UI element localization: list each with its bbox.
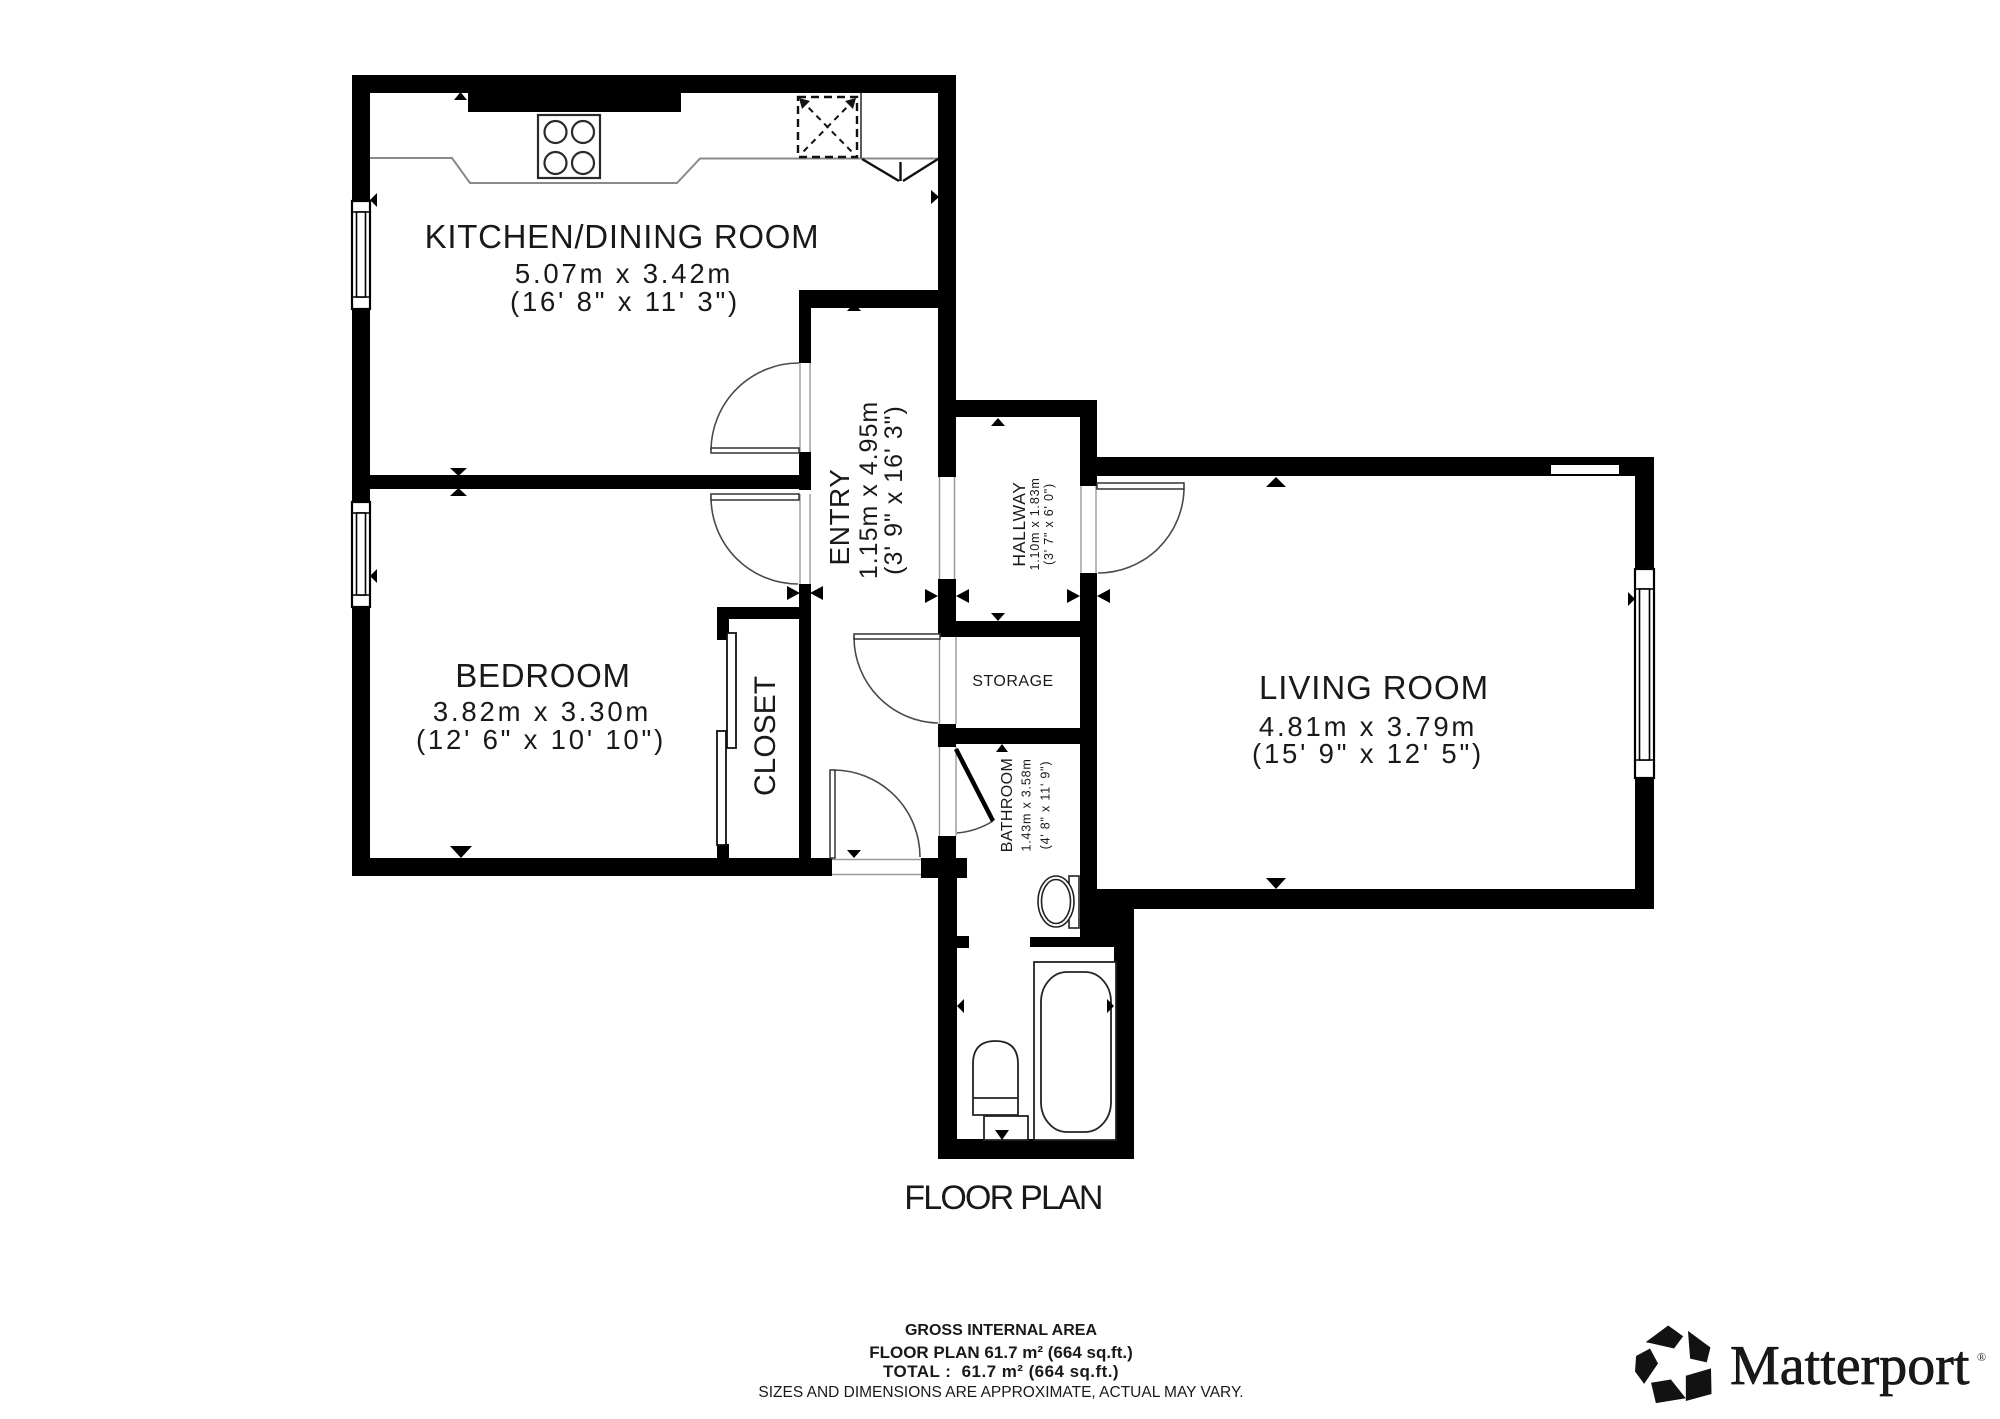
- svg-text:STORAGE: STORAGE: [972, 673, 1053, 690]
- svg-text:5.07m x 3.42m: 5.07m x 3.42m: [515, 258, 733, 289]
- svg-text:(15' 9" x 12' 5"): (15' 9" x 12' 5"): [1252, 738, 1484, 769]
- svg-text:®: ®: [1977, 1350, 1986, 1364]
- svg-text:1.15m x 4.95m: 1.15m x 4.95m: [855, 401, 883, 579]
- svg-text:TOTAL : 61.7 m² (664 sq.ft.): TOTAL : 61.7 m² (664 sq.ft.): [883, 1362, 1119, 1381]
- svg-text:Matterport: Matterport: [1730, 1335, 1970, 1397]
- svg-text:(4' 8" x 11' 9"): (4' 8" x 11' 9"): [1039, 761, 1053, 850]
- svg-text:BATHROOM: BATHROOM: [999, 758, 1016, 852]
- svg-text:(3' 9" x 16' 3"): (3' 9" x 16' 3"): [880, 405, 908, 575]
- svg-text:FLOOR PLAN 61.7 m² (664 sq.ft.: FLOOR PLAN 61.7 m² (664 sq.ft.): [869, 1343, 1133, 1362]
- svg-text:CLOSET: CLOSET: [749, 676, 782, 796]
- svg-text:(16' 8" x 11' 3"): (16' 8" x 11' 3"): [510, 286, 740, 317]
- svg-text:FLOOR PLAN: FLOOR PLAN: [904, 1179, 1101, 1217]
- svg-text:GROSS INTERNAL AREA: GROSS INTERNAL AREA: [905, 1322, 1097, 1339]
- svg-text:(3' 7" x 6' 0"): (3' 7" x 6' 0"): [1042, 483, 1056, 565]
- svg-text:ENTRY: ENTRY: [824, 469, 855, 566]
- svg-text:1.10m x 1.83m: 1.10m x 1.83m: [1028, 477, 1042, 570]
- svg-text:3.82m x 3.30m: 3.82m x 3.30m: [433, 696, 651, 727]
- svg-text:KITCHEN/DINING ROOM: KITCHEN/DINING ROOM: [425, 218, 820, 255]
- svg-text:LIVING ROOM: LIVING ROOM: [1259, 669, 1489, 706]
- svg-text:HALLWAY: HALLWAY: [1009, 481, 1029, 566]
- svg-text:1.43m x 3.58m: 1.43m x 3.58m: [1020, 758, 1034, 851]
- svg-text:(12' 6" x 10' 10"): (12' 6" x 10' 10"): [416, 724, 666, 755]
- svg-text:BEDROOM: BEDROOM: [455, 657, 630, 694]
- svg-text:SIZES AND DIMENSIONS ARE APPRO: SIZES AND DIMENSIONS ARE APPROXIMATE, AC…: [758, 1384, 1243, 1401]
